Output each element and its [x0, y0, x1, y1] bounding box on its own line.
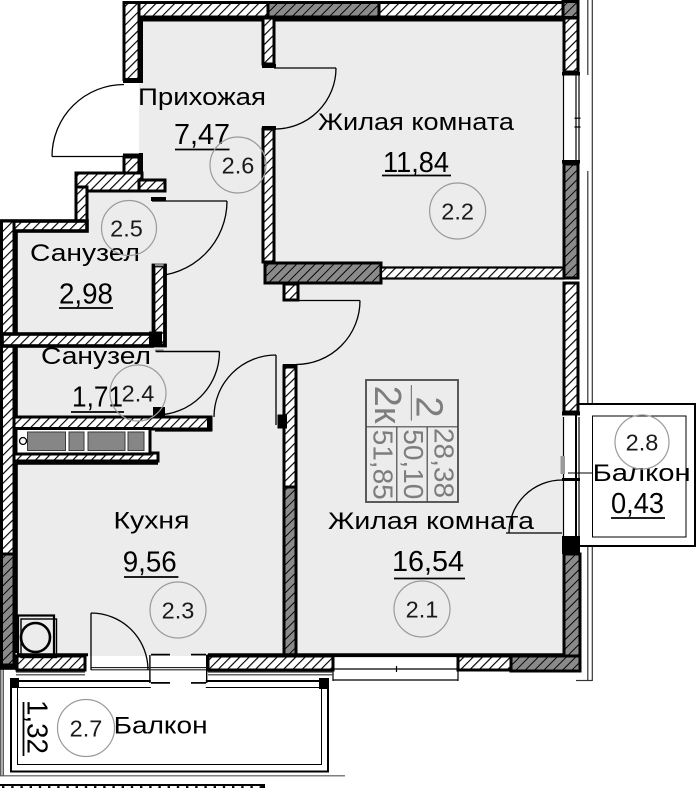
svg-text:Жилая комната: Жилая комната [328, 508, 534, 535]
svg-text:2.5: 2.5 [110, 216, 143, 242]
svg-text:Санузел: Санузел [30, 240, 140, 267]
svg-text:28,38: 28,38 [429, 428, 460, 498]
svg-text:0,43: 0,43 [611, 488, 664, 520]
svg-text:2.4: 2.4 [122, 381, 155, 407]
svg-text:Балкон: Балкон [114, 713, 208, 740]
svg-text:2: 2 [407, 396, 449, 417]
svg-text:Жилая комната: Жилая комната [318, 109, 514, 136]
svg-text:16,54: 16,54 [392, 546, 464, 578]
svg-text:2.8: 2.8 [626, 430, 659, 456]
svg-text:51,85: 51,85 [368, 430, 399, 500]
svg-text:Прихожая: Прихожая [138, 84, 266, 111]
svg-text:9,56: 9,56 [123, 547, 177, 579]
svg-text:50,10: 50,10 [398, 429, 429, 499]
svg-text:7,47: 7,47 [174, 119, 230, 151]
svg-text:11,84: 11,84 [383, 147, 449, 179]
svg-text:2.7: 2.7 [70, 716, 103, 742]
svg-text:Кухня: Кухня [114, 508, 190, 535]
svg-text:Санузел: Санузел [41, 343, 151, 370]
svg-text:2.1: 2.1 [406, 597, 439, 623]
svg-text:2.6: 2.6 [222, 153, 255, 179]
svg-text:2к: 2к [366, 386, 408, 424]
svg-text:2,98: 2,98 [59, 279, 113, 311]
svg-text:1,32: 1,32 [21, 700, 53, 754]
svg-text:2.2: 2.2 [441, 199, 474, 225]
svg-text:Балкон: Балкон [593, 460, 691, 487]
svg-text:2.3: 2.3 [162, 598, 195, 624]
